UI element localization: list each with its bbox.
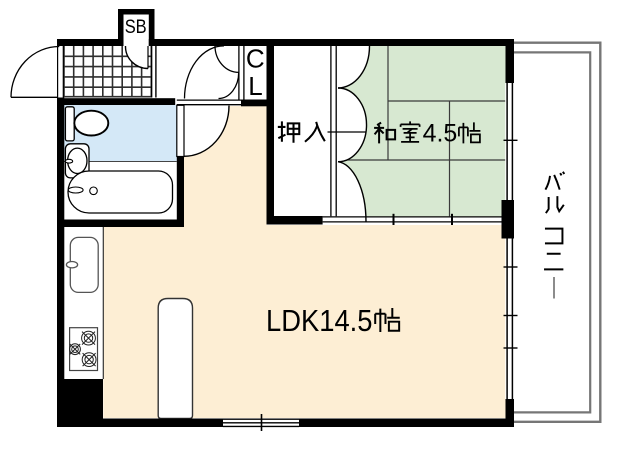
svg-text:L: L (248, 71, 262, 101)
svg-text:SB: SB (125, 17, 147, 38)
svg-text:LDK14.5: LDK14.5 (266, 304, 373, 338)
svg-text:4.5: 4.5 (423, 119, 458, 147)
svg-text:C: C (246, 44, 265, 74)
